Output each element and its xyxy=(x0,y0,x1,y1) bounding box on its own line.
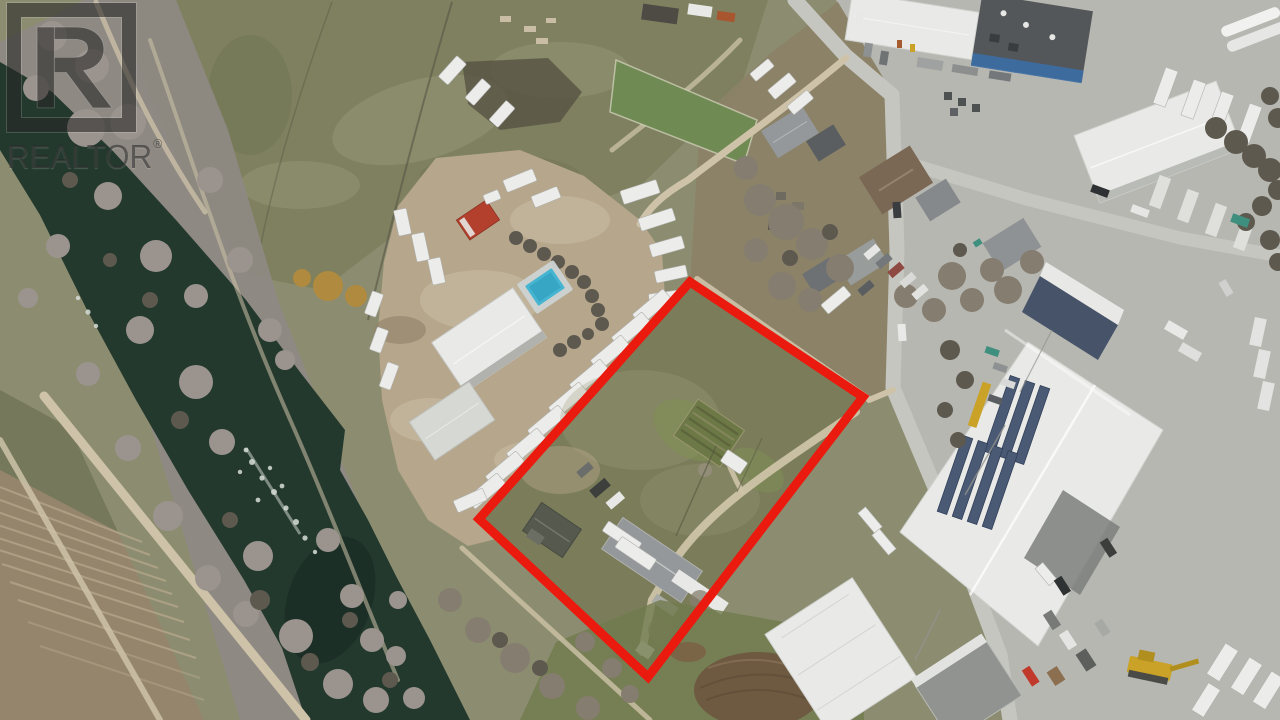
realtor-wordmark: REALTOR® xyxy=(7,137,162,173)
aerial-photo: REALTOR® xyxy=(0,0,1280,720)
car-on-street xyxy=(897,324,906,342)
realtor-logo-r-icon xyxy=(21,17,122,118)
golden-willow-tree xyxy=(313,271,343,301)
registered-trademark-symbol: ® xyxy=(153,136,162,151)
realtor-watermark: REALTOR® xyxy=(7,3,170,173)
realtor-logo-box xyxy=(7,3,136,132)
aerial-scene xyxy=(0,0,1280,720)
